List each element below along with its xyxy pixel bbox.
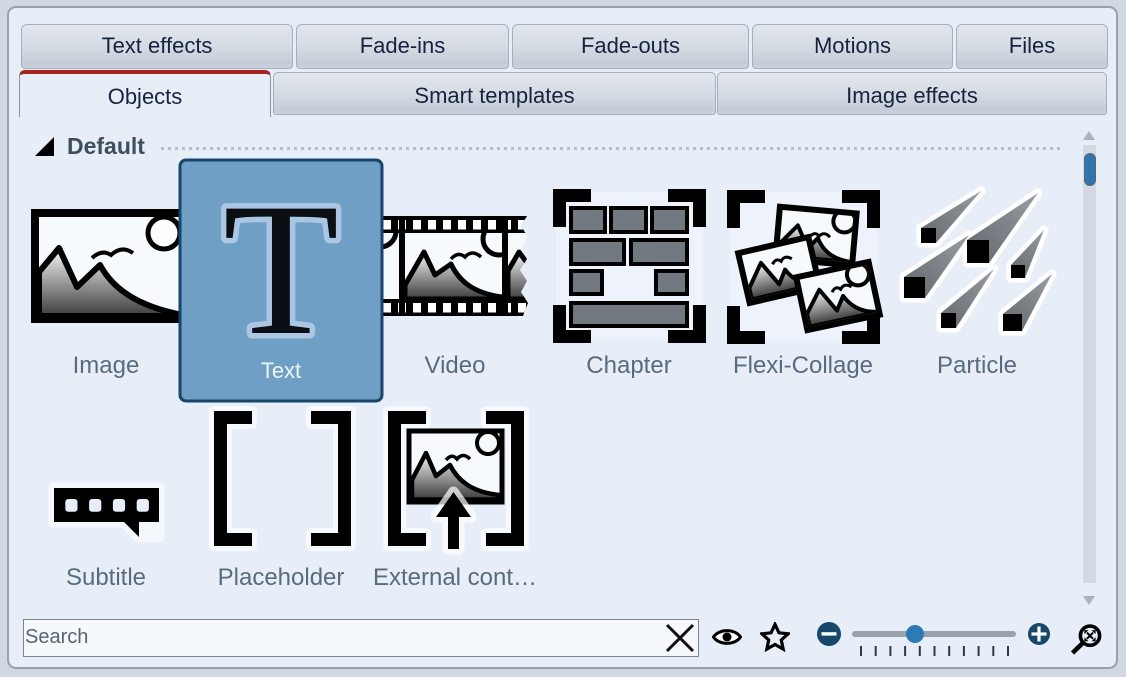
- svg-text:T: T: [223, 165, 339, 375]
- svg-text:Text: Text: [261, 358, 301, 383]
